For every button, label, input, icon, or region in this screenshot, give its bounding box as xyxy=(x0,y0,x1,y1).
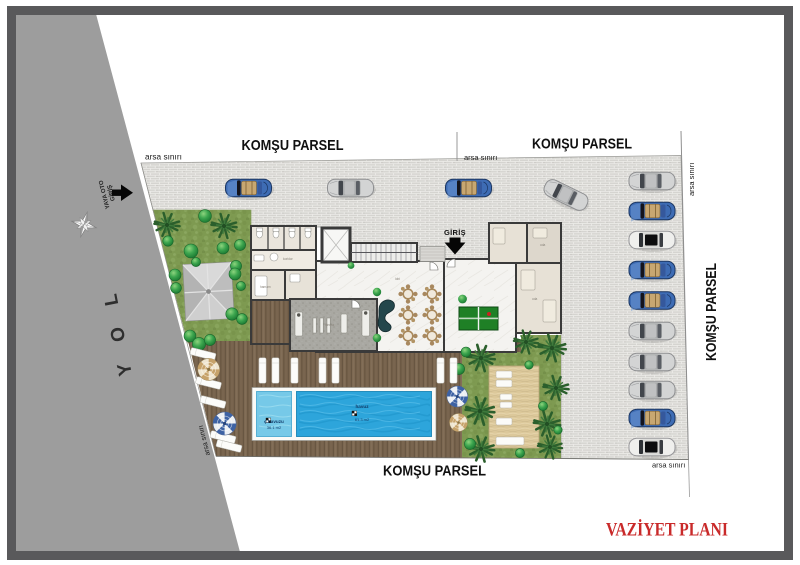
svg-text:KOMŞU PARSEL: KOMŞU PARSEL xyxy=(383,463,486,480)
svg-text:koridor: koridor xyxy=(283,257,294,261)
svg-text:arsa sınırı: arsa sınırı xyxy=(687,163,696,196)
svg-text:fitness: fitness xyxy=(325,323,335,327)
svg-text:oda: oda xyxy=(540,243,546,247)
svg-text:61.3 m2: 61.3 m2 xyxy=(355,417,370,422)
svg-text:hamam: hamam xyxy=(260,285,271,289)
svg-text:KOMŞU PARSEL: KOMŞU PARSEL xyxy=(242,137,344,154)
svg-text:oda: oda xyxy=(532,297,538,301)
svg-text:GİRİŞ: GİRİŞ xyxy=(444,228,466,237)
svg-text:arsa sınırı: arsa sınırı xyxy=(652,461,685,470)
svg-text:arsa sınırı: arsa sınırı xyxy=(464,153,497,162)
svg-text:ç.havuzu: ç.havuzu xyxy=(264,419,284,424)
svg-text:havuz: havuz xyxy=(355,404,369,409)
svg-text:VAZİYET PLANI: VAZİYET PLANI xyxy=(606,520,728,541)
svg-text:36.1 m2: 36.1 m2 xyxy=(267,425,282,430)
svg-text:lobi: lobi xyxy=(395,277,400,281)
svg-text:KOMŞU PARSEL: KOMŞU PARSEL xyxy=(532,136,632,153)
svg-text:arsa sınırı: arsa sınırı xyxy=(145,152,182,162)
svg-text:KOMŞU PARSEL: KOMŞU PARSEL xyxy=(703,263,720,361)
